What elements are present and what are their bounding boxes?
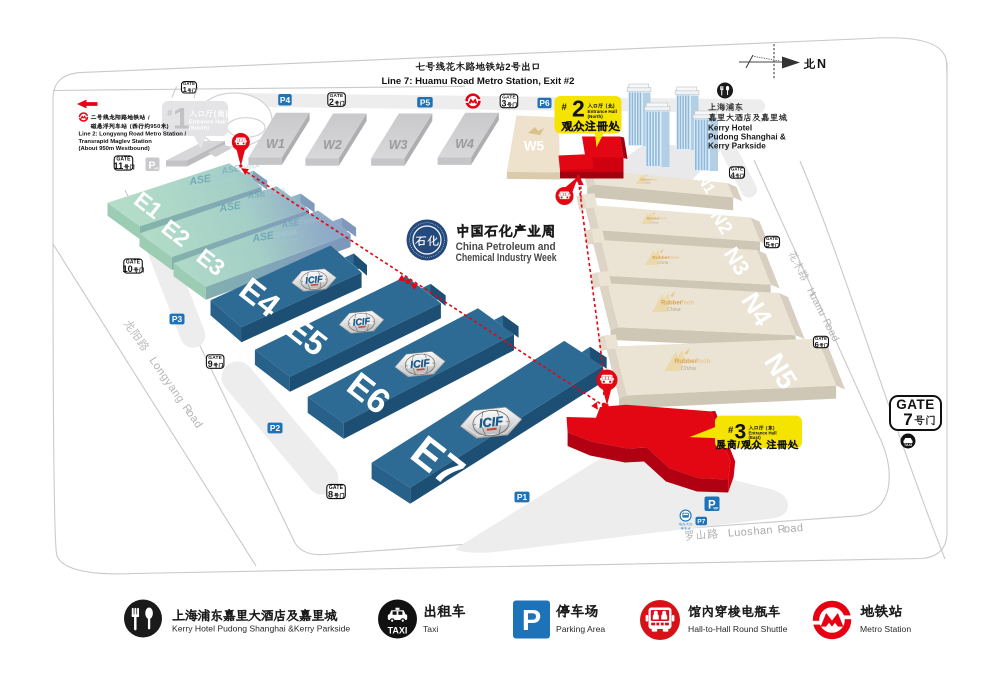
svg-text:Chemical Industry Week: Chemical Industry Week xyxy=(456,252,557,264)
svg-text:P4: P4 xyxy=(280,95,291,105)
svg-text:Rubber: Rubber xyxy=(661,301,683,307)
svg-text:P2: P2 xyxy=(270,423,281,433)
svg-text:VIP: VIP xyxy=(713,507,719,511)
svg-text:China: China xyxy=(681,366,696,372)
svg-text:Tech: Tech xyxy=(696,358,711,365)
svg-text:Tech: Tech xyxy=(668,255,679,261)
svg-text:Hall-to-Hall Round Shuttle: Hall-to-Hall Round Shuttle xyxy=(688,624,788,634)
svg-text:China: China xyxy=(667,307,681,313)
svg-text:TAXI: TAXI xyxy=(904,443,912,447)
svg-text:6: 6 xyxy=(815,340,819,349)
svg-text:P: P xyxy=(522,605,541,637)
svg-text:Tech: Tech xyxy=(650,177,657,181)
svg-text:11: 11 xyxy=(113,161,123,171)
svg-text:Tech: Tech xyxy=(681,301,695,307)
svg-text:China: China xyxy=(650,220,658,224)
svg-text:P3: P3 xyxy=(172,314,183,324)
svg-text:P5: P5 xyxy=(420,97,431,107)
svg-text:W1: W1 xyxy=(266,137,285,151)
svg-text:China: China xyxy=(657,260,669,265)
svg-text:(: ( xyxy=(130,124,132,130)
svg-text:(South): (South) xyxy=(189,125,209,131)
svg-text:W4: W4 xyxy=(455,137,474,151)
svg-text:Line 7: Huamu Road Metro Stati: Line 7: Huamu Road Metro Station, Exit #… xyxy=(382,76,575,87)
svg-text:P7: P7 xyxy=(697,518,705,525)
svg-text:Tech: Tech xyxy=(659,217,667,221)
svg-text:Kerry Hotel: Kerry Hotel xyxy=(708,124,752,133)
svg-text:VIP: VIP xyxy=(154,167,159,171)
svg-text:Parking Area: Parking Area xyxy=(556,624,605,634)
svg-text:ICIF: ICIF xyxy=(305,274,324,286)
svg-text:#: # xyxy=(728,425,734,436)
svg-text:P1: P1 xyxy=(517,492,528,502)
svg-text:8: 8 xyxy=(328,490,333,500)
svg-text:2: 2 xyxy=(572,96,585,122)
svg-text:W5: W5 xyxy=(524,139,545,154)
svg-text:W3: W3 xyxy=(389,138,408,152)
svg-text:9: 9 xyxy=(208,359,213,369)
svg-text:W2: W2 xyxy=(323,138,342,152)
svg-text:ICIF: ICIF xyxy=(478,414,503,430)
svg-text:3: 3 xyxy=(501,99,506,109)
svg-text:Metro Station: Metro Station xyxy=(860,624,911,634)
svg-text:(About 950m Westbound): (About 950m Westbound) xyxy=(79,146,150,152)
svg-text:TAXI: TAXI xyxy=(388,626,408,636)
svg-text:): ) xyxy=(225,110,228,119)
svg-text:ICIF: ICIF xyxy=(352,316,371,328)
svg-text:P6: P6 xyxy=(539,98,550,108)
svg-text:Kerry Hotel Pudong Shanghai &K: Kerry Hotel Pudong Shanghai &Kerry Parks… xyxy=(172,624,350,634)
svg-text:d: d xyxy=(796,522,803,534)
svg-text:GATE: GATE xyxy=(896,397,935,412)
svg-text:Line 2: Longyang Road Metro St: Line 2: Longyang Road Metro Station / xyxy=(79,131,187,137)
svg-text:7: 7 xyxy=(903,410,912,429)
svg-text:n: n xyxy=(766,524,773,536)
svg-text:2: 2 xyxy=(329,97,334,107)
svg-text:N: N xyxy=(817,57,826,71)
svg-text:Pudong Shanghai &: Pudong Shanghai & xyxy=(708,133,786,142)
svg-text:#: # xyxy=(562,102,568,113)
svg-text:(East): (East) xyxy=(749,435,762,440)
svg-text:Rubber: Rubber xyxy=(674,358,698,365)
svg-text:2: 2 xyxy=(505,62,510,73)
svg-text:Kerry Parkside: Kerry Parkside xyxy=(708,142,766,151)
svg-text:0: 0 xyxy=(157,124,160,130)
svg-text:(North): (North) xyxy=(588,114,604,119)
svg-text:Taxi: Taxi xyxy=(423,624,438,634)
svg-text:(: ( xyxy=(214,110,217,119)
svg-text:Transrapid Maglev Station: Transrapid Maglev Station xyxy=(79,139,153,145)
svg-text:China: China xyxy=(644,181,651,185)
svg-text:): ) xyxy=(167,124,169,130)
svg-text:/: / xyxy=(737,440,740,451)
svg-text:10: 10 xyxy=(122,264,132,274)
